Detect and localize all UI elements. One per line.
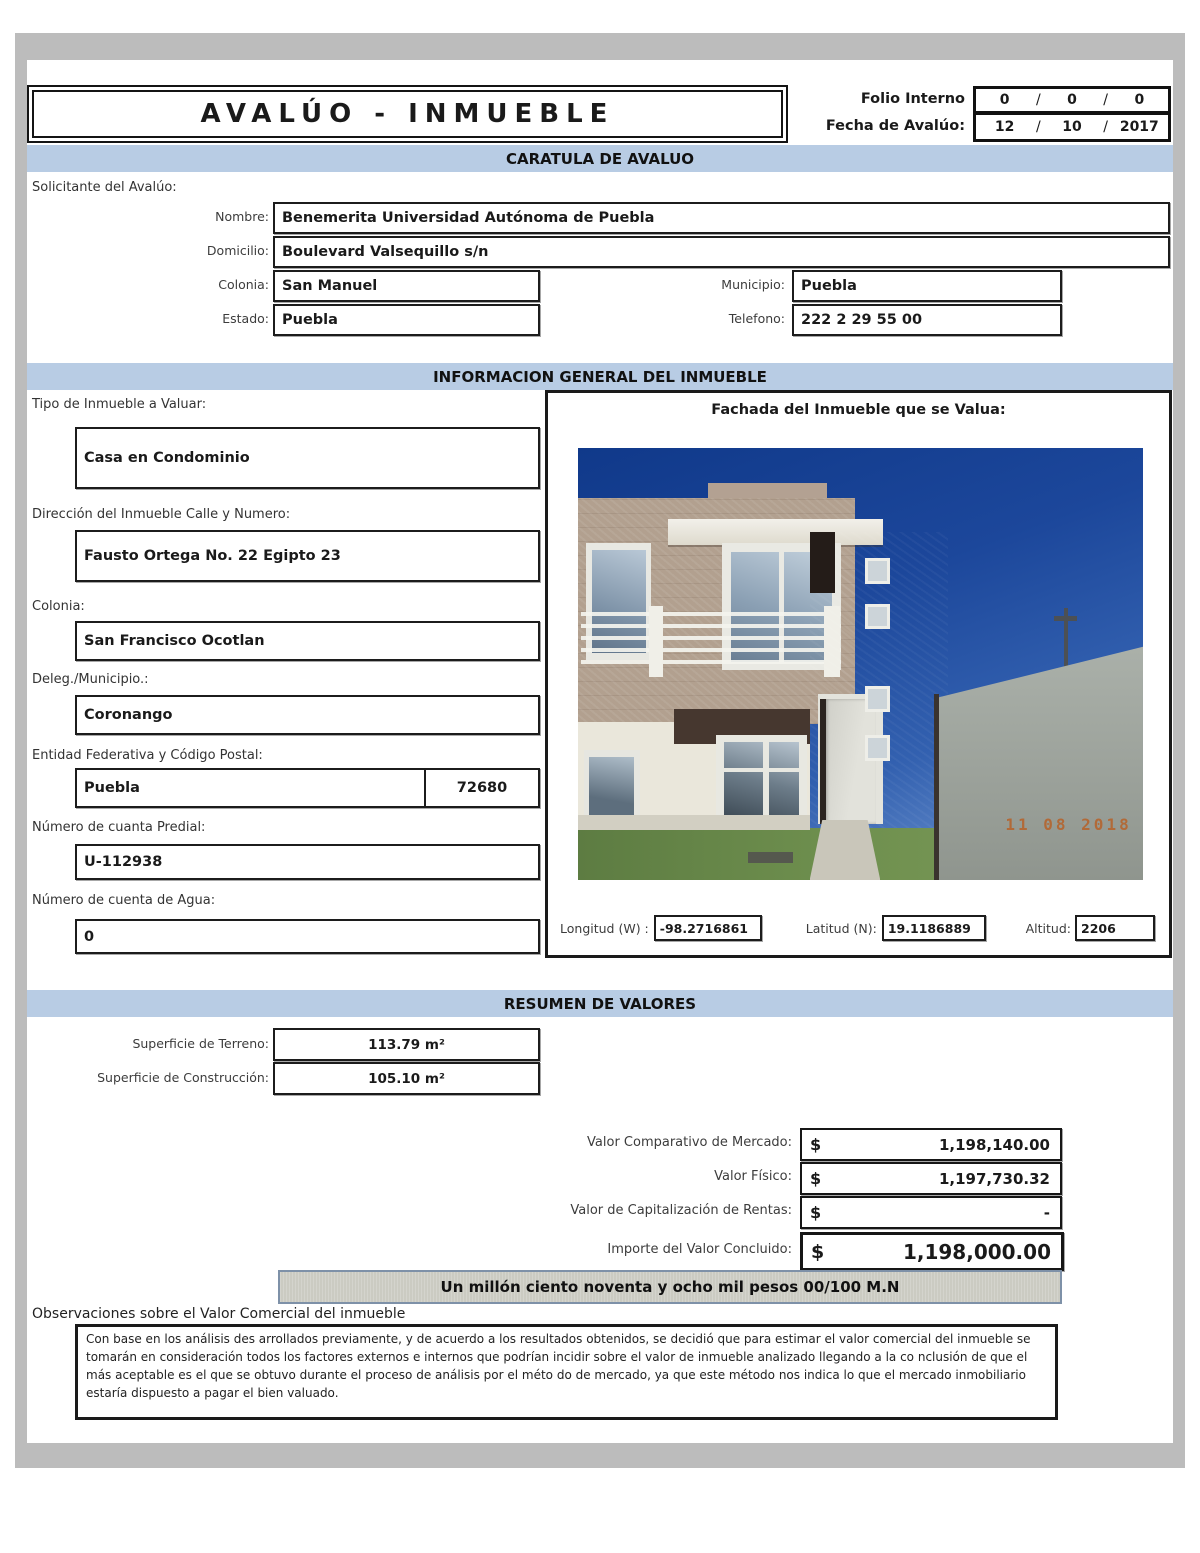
- altitud-value: 2206: [1077, 921, 1116, 936]
- fecha-avaluo-label: Fecha de Avalúo:: [799, 118, 965, 134]
- colonia-inmueble-label: Colonia:: [32, 599, 85, 614]
- valor-fisico-amount: 1,197,730.32: [821, 1170, 1060, 1188]
- title-box: AVALÚO - INMUEBLE: [27, 85, 788, 143]
- valor-mercado-label: Valor Comparativo de Mercado:: [462, 1135, 792, 1150]
- predial-value: U-112938: [77, 854, 162, 870]
- agua-field: 0: [75, 919, 540, 954]
- importe-concluido-amount: 1,198,000.00: [824, 1240, 1061, 1264]
- direccion-value: Fausto Ortega No. 22 Egipto 23: [77, 548, 341, 564]
- folio-cell-2: 0: [1043, 92, 1100, 108]
- colonia-field: San Manuel: [273, 270, 540, 302]
- valor-capitalizacion-field: $ -: [800, 1196, 1062, 1229]
- small-window-4: [865, 735, 890, 761]
- valor-mercado-field: $ 1,198,140.00: [800, 1128, 1062, 1161]
- lower-window-center-transom: [724, 768, 800, 772]
- importe-concluido-currency: $: [803, 1241, 824, 1263]
- valor-mercado-currency: $: [802, 1135, 821, 1154]
- entry-door: [825, 699, 876, 823]
- folio-cell-1: 0: [976, 92, 1033, 108]
- agua-value: 0: [77, 929, 94, 945]
- nombre-label: Nombre:: [157, 209, 269, 224]
- direccion-field: Fausto Ortega No. 22 Egipto 23: [75, 530, 540, 582]
- tipo-inmueble-value: Casa en Condominio: [77, 450, 250, 466]
- balcony-railing: [581, 612, 841, 670]
- drain-grate: [748, 852, 793, 863]
- altitud-field: 2206: [1075, 915, 1155, 941]
- folio-slash-2: /: [1101, 92, 1111, 108]
- scan-frame: AVALÚO - INMUEBLE Folio Interno 0 / 0 / …: [15, 33, 1185, 1468]
- longitud-value: -98.2716861: [656, 921, 748, 936]
- valor-capitalizacion-amount: -: [821, 1204, 1060, 1222]
- municipio-value: Puebla: [794, 278, 857, 294]
- date-cell-day: 12: [976, 119, 1033, 135]
- valor-capitalizacion-label: Valor de Capitalización de Rentas:: [462, 1203, 792, 1218]
- colonia-value: San Manuel: [275, 278, 377, 294]
- longitud-field: -98.2716861: [654, 915, 762, 941]
- superficie-terreno-value: 113.79 m²: [368, 1037, 445, 1053]
- colonia-label: Colonia:: [157, 277, 269, 292]
- superficie-construccion-field: 105.10 m²: [273, 1062, 540, 1095]
- municipio-label: Municipio:: [667, 277, 785, 292]
- superficie-terreno-label: Superficie de Terreno:: [87, 1036, 269, 1051]
- date-cell-month: 10: [1043, 119, 1100, 135]
- date-cell-year: 2017: [1111, 119, 1168, 135]
- valor-capitalizacion-currency: $: [802, 1203, 821, 1222]
- folio-slash-1: /: [1033, 92, 1043, 108]
- nombre-field: Benemerita Universidad Autónoma de Puebl…: [273, 202, 1170, 234]
- geo-coordinates-row: Longitud (W) : -98.2716861 Latitud (N): …: [560, 915, 1155, 941]
- agua-label: Número de cuenta de Agua:: [32, 893, 215, 908]
- telefono-field: 222 2 29 55 00: [792, 304, 1062, 336]
- valor-fisico-label: Valor Físico:: [462, 1169, 792, 1184]
- fachada-panel: Fachada del Inmueble que se Valua:: [545, 390, 1172, 958]
- entry-door-opening: [820, 699, 826, 823]
- domicilio-label: Domicilio:: [157, 243, 269, 258]
- valor-fisico-currency: $: [802, 1169, 821, 1188]
- domicilio-value: Boulevard Valsequillo s/n: [275, 244, 488, 260]
- superficie-construccion-label: Superficie de Construcción:: [87, 1070, 269, 1085]
- entidad-value: Puebla: [77, 780, 424, 796]
- importe-concluido-field: $ 1,198,000.00: [800, 1232, 1064, 1271]
- longitud-label: Longitud (W) :: [560, 921, 649, 936]
- page-title: AVALÚO - INMUEBLE: [201, 99, 615, 129]
- photo-date-stamp: 11 08 2018: [1005, 815, 1131, 834]
- estado-label: Estado:: [157, 311, 269, 326]
- balcony-post-left: [649, 606, 664, 677]
- boundary-wall-edge: [934, 694, 939, 880]
- small-window-2: [865, 604, 890, 630]
- valor-mercado-amount: 1,198,140.00: [821, 1136, 1060, 1154]
- observaciones-heading: Observaciones sobre el Valor Comercial d…: [32, 1306, 405, 1322]
- estado-value: Puebla: [275, 312, 338, 328]
- utility-pole-crossarm: [1054, 616, 1078, 620]
- folio-interno-value: 0 / 0 / 0: [973, 86, 1171, 114]
- superficie-construccion-value: 105.10 m²: [368, 1071, 445, 1087]
- solicitante-heading: Solicitante del Avalúo:: [32, 180, 177, 195]
- deleg-municipio-value: Coronango: [77, 707, 173, 723]
- fachada-title: Fachada del Inmueble que se Valua:: [548, 402, 1169, 418]
- document-page: AVALÚO - INMUEBLE Folio Interno 0 / 0 / …: [27, 60, 1173, 1443]
- deleg-municipio-field: Coronango: [75, 695, 540, 735]
- folio-cell-3: 0: [1111, 92, 1168, 108]
- colonia-inmueble-value: San Francisco Ocotlan: [77, 633, 265, 649]
- telefono-value: 222 2 29 55 00: [794, 312, 922, 328]
- amount-in-words-band: Un millón ciento noventa y ocho mil peso…: [278, 1270, 1062, 1304]
- colonia-inmueble-field: San Francisco Ocotlan: [75, 621, 540, 661]
- entidad-label: Entidad Federativa y Código Postal:: [32, 748, 263, 763]
- telefono-label: Telefono:: [667, 311, 785, 326]
- section-band-info-general: INFORMACION GENERAL DEL INMUEBLE: [27, 363, 1173, 390]
- altitud-label: Altitud:: [1026, 921, 1071, 936]
- latitud-value: 19.1186889: [884, 921, 971, 936]
- valor-fisico-field: $ 1,197,730.32: [800, 1162, 1062, 1195]
- predial-field: U-112938: [75, 844, 540, 880]
- municipio-field: Puebla: [792, 270, 1062, 302]
- folio-interno-label: Folio Interno: [833, 91, 965, 107]
- entidad-field: Puebla 72680: [75, 768, 540, 808]
- lower-window-left-glass: [589, 757, 634, 817]
- domicilio-field: Boulevard Valsequillo s/n: [273, 236, 1170, 268]
- fecha-avaluo-value: 12 / 10 / 2017: [973, 112, 1171, 142]
- sidewalk-strip: [578, 815, 810, 830]
- section-band-resumen: RESUMEN DE VALORES: [27, 990, 1173, 1017]
- facade-photo: 11 08 2018: [578, 448, 1143, 880]
- estado-field: Puebla: [273, 304, 540, 336]
- deleg-municipio-label: Deleg./Municipio.:: [32, 672, 149, 687]
- tipo-inmueble-field: Casa en Condominio: [75, 427, 540, 489]
- nombre-value: Benemerita Universidad Autónoma de Puebl…: [275, 210, 654, 226]
- direccion-label: Dirección del Inmueble Calle y Numero:: [32, 507, 290, 522]
- small-window-3: [865, 686, 890, 712]
- section-band-caratula: CARATULA DE AVALUO: [27, 145, 1173, 172]
- date-slash-1: /: [1033, 119, 1043, 135]
- tipo-inmueble-label: Tipo de Inmueble a Valuar:: [32, 397, 206, 412]
- date-slash-2: /: [1101, 119, 1111, 135]
- latitud-label: Latitud (N):: [806, 921, 877, 936]
- importe-concluido-label: Importe del Valor Concluido:: [462, 1242, 792, 1257]
- small-window-1: [865, 558, 890, 584]
- latitud-field: 19.1186889: [882, 915, 986, 941]
- codigo-postal-value: 72680: [424, 770, 538, 806]
- tower-shadow-recess: [810, 532, 835, 592]
- observaciones-box: Con base en los análisis des arrollados …: [75, 1324, 1058, 1420]
- predial-label: Número de cuanta Predial:: [32, 820, 205, 835]
- superficie-terreno-field: 113.79 m²: [273, 1028, 540, 1061]
